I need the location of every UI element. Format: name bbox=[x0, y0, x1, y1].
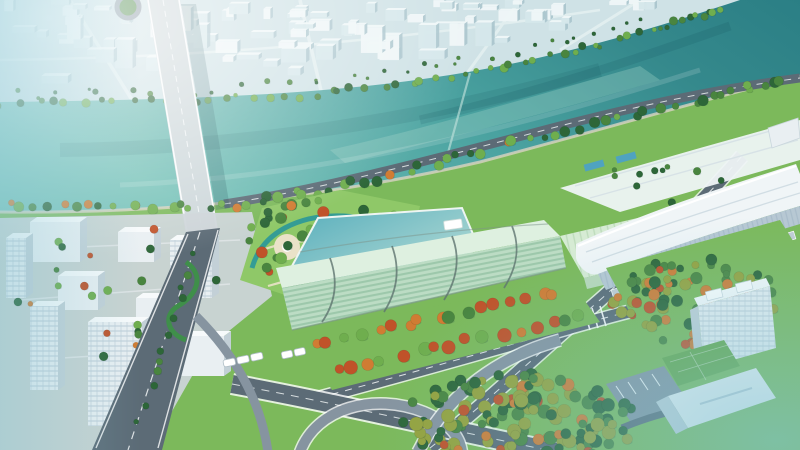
aerial-rendering-canvas bbox=[0, 0, 800, 450]
aerial-rendering bbox=[0, 0, 800, 450]
atmospheric-haze-left bbox=[0, 0, 140, 450]
